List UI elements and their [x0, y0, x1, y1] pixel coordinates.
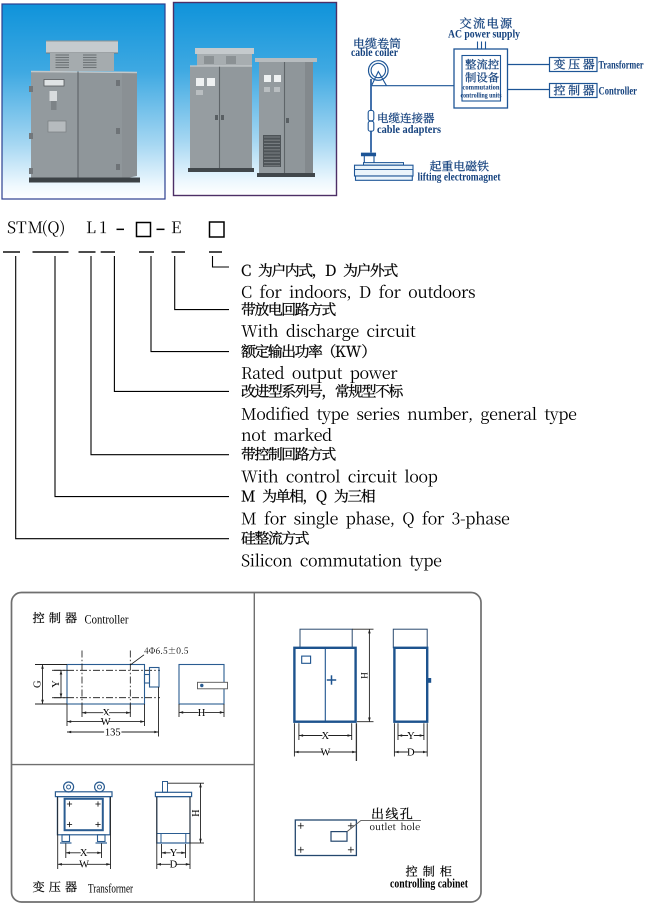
- svg-text:W: W: [79, 860, 89, 871]
- svg-text:H: H: [191, 809, 202, 816]
- svg-text:W: W: [320, 747, 330, 758]
- svg-text:commutation: commutation: [463, 85, 500, 92]
- svg-text:D: D: [407, 747, 415, 758]
- svg-text:lifting electromagnet: lifting electromagnet: [418, 171, 501, 184]
- svg-text:H: H: [198, 708, 206, 719]
- svg-text:AC power supply: AC power supply: [448, 28, 520, 41]
- svg-text:Controller: Controller: [85, 611, 130, 626]
- svg-text:G: G: [32, 680, 43, 688]
- svg-text:cable coiler: cable coiler: [351, 46, 398, 59]
- svg-text:X: X: [80, 848, 88, 859]
- svg-text:controlling units: controlling units: [461, 93, 502, 100]
- svg-text:Y: Y: [170, 848, 178, 859]
- svg-text:Controller: Controller: [599, 85, 638, 98]
- svg-text:Transformer: Transformer: [88, 880, 133, 895]
- svg-text:Y: Y: [407, 731, 415, 742]
- svg-text:135: 135: [105, 727, 121, 738]
- svg-text:H: H: [359, 672, 369, 679]
- svg-text:Y: Y: [51, 680, 62, 688]
- svg-text:X: X: [322, 731, 330, 742]
- svg-text:cable adapters: cable adapters: [377, 123, 441, 136]
- svg-text:Transformer: Transformer: [599, 59, 644, 72]
- svg-text:controlling cabinet: controlling cabinet: [390, 876, 469, 890]
- svg-text:D: D: [170, 860, 178, 871]
